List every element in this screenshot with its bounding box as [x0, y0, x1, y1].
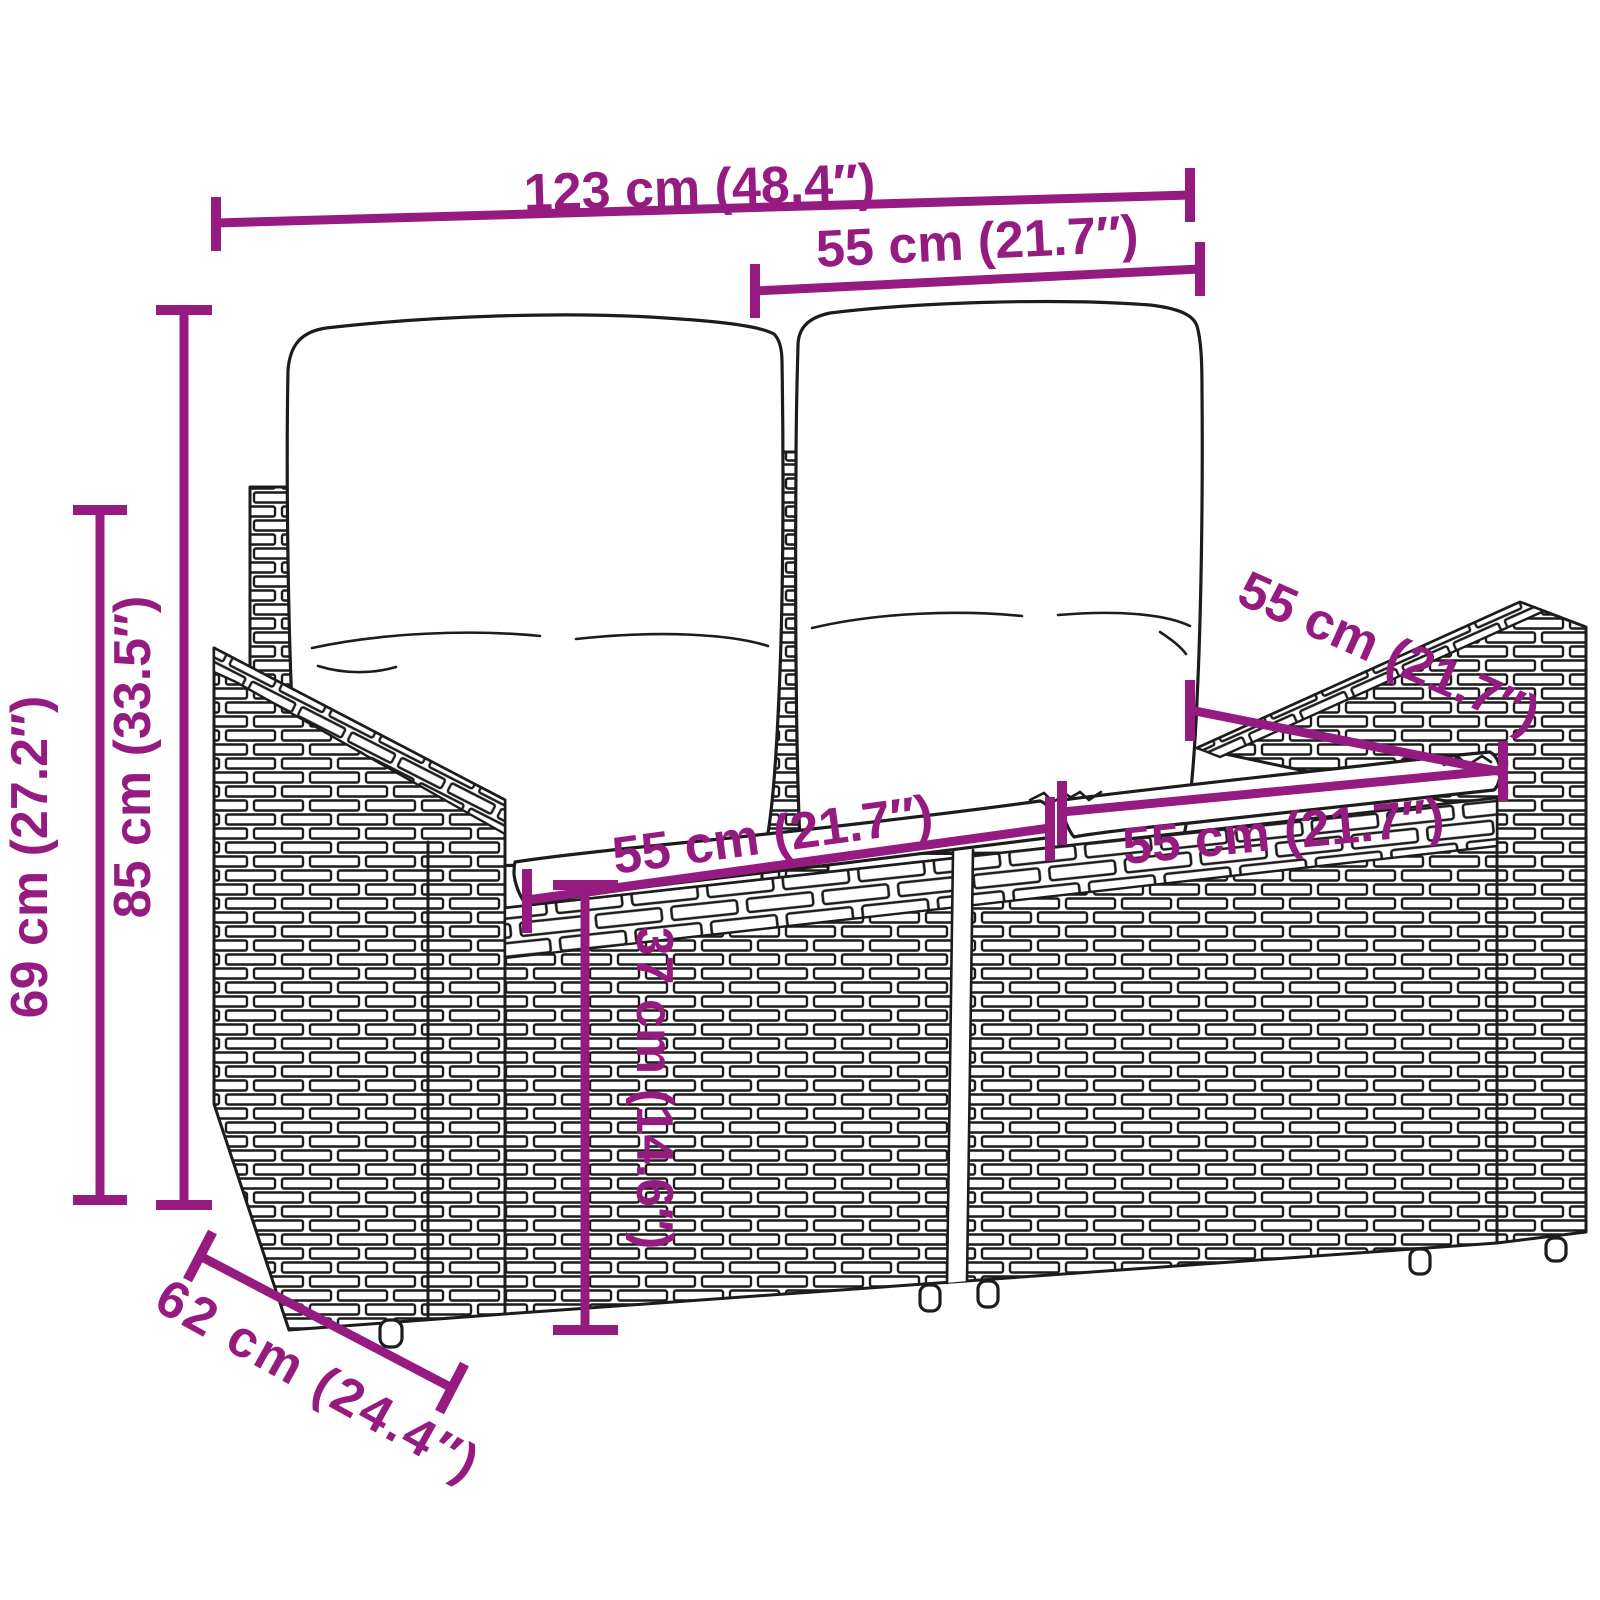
back-cushion-right-body [796, 302, 1203, 854]
dim-backrest-cushion-width-label: 55 cm (21.7″) [815, 205, 1140, 279]
dim-frame-height-label: 69 cm (27.2″) [1, 696, 59, 1019]
dim-seat-height-label: 37 cm (14.6″) [625, 927, 683, 1250]
back-cushion-right [796, 302, 1203, 854]
dim-overall-height-label: 85 cm (33.5″) [104, 596, 162, 919]
dimension-diagram: 123 cm (48.4″) 55 cm (21.7″) 85 cm (33.5… [0, 0, 1600, 1600]
dim-overall-height: 85 cm (33.5″) [104, 310, 212, 1205]
sofa-leg [978, 1281, 998, 1307]
sofa-leg [1546, 1238, 1566, 1261]
dim-overall-width-label: 123 cm (48.4″) [523, 154, 876, 222]
sofa-leg [380, 1320, 402, 1347]
sofa-leg [1410, 1249, 1430, 1274]
diagram-canvas: 123 cm (48.4″) 55 cm (21.7″) 85 cm (33.5… [0, 0, 1600, 1600]
sofa-leg [920, 1285, 940, 1311]
